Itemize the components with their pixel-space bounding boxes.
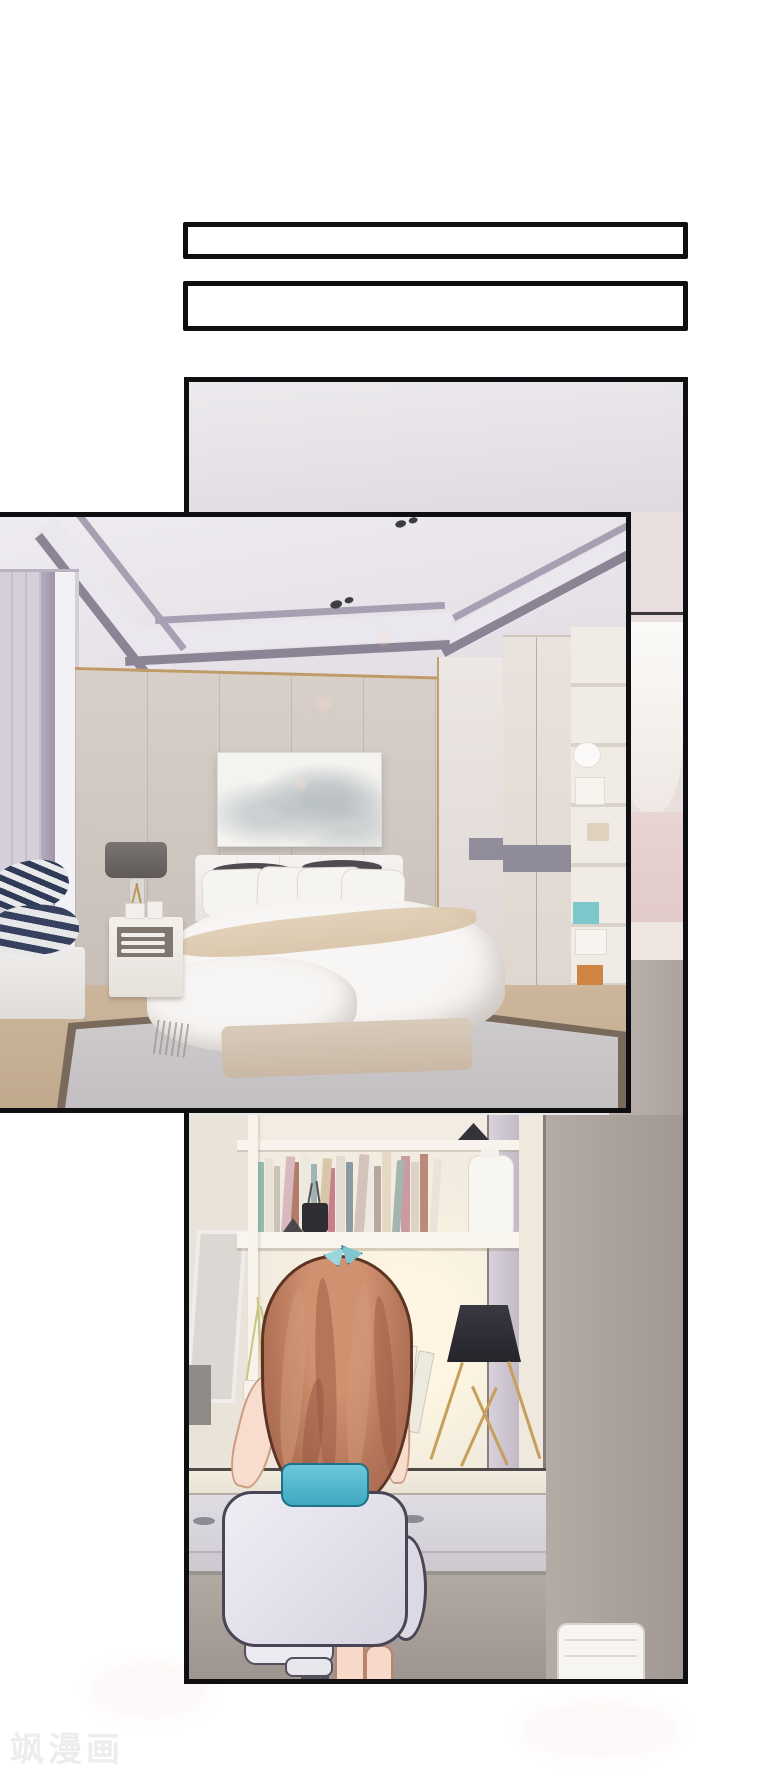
room-ceiling <box>189 382 683 532</box>
white-cabinet <box>557 1623 645 1679</box>
book-spine <box>382 1152 392 1232</box>
white-jar <box>468 1155 514 1234</box>
teal-bin <box>573 902 599 924</box>
tan-box <box>587 823 609 841</box>
towel-roll <box>573 742 601 768</box>
canister <box>125 903 145 919</box>
narration-box-1 <box>183 222 688 259</box>
book-spine <box>336 1156 345 1232</box>
bed-base <box>221 1018 473 1079</box>
desk-scene <box>189 1115 683 1679</box>
paper-tint <box>520 1700 680 1760</box>
bokeh-sparkle <box>295 779 307 791</box>
book-spine <box>346 1162 354 1232</box>
shelf-board <box>237 1232 519 1248</box>
girl-teal-top <box>281 1463 369 1507</box>
chair-backrest <box>222 1491 408 1647</box>
bokeh-sparkle <box>317 697 331 711</box>
wardrobe-side-wall <box>546 1115 683 1679</box>
throw-fringe <box>153 1020 193 1059</box>
gray-box <box>189 1365 211 1425</box>
book-row <box>255 1152 437 1232</box>
wardrobe-sliding-doors <box>503 635 571 999</box>
nightstand-shelf <box>117 927 173 957</box>
narration-box-2 <box>183 281 688 331</box>
shelf-board-upper <box>237 1140 519 1150</box>
wall-artwork <box>217 752 382 847</box>
watermark: 飒漫画 <box>10 1722 124 1770</box>
book-spine <box>274 1166 281 1232</box>
girl-leg <box>365 1645 393 1679</box>
book-spine <box>374 1166 381 1232</box>
window-bench <box>0 947 85 1019</box>
canister <box>147 901 163 919</box>
book-spine <box>420 1154 429 1232</box>
chair-foot <box>285 1657 333 1677</box>
comic-page: 飒漫画 <box>0 0 760 1770</box>
bedroom-photo-panel <box>0 512 631 1113</box>
drawer-handle <box>193 1517 215 1525</box>
bokeh-sparkle <box>379 635 389 645</box>
bedside-lamp-shade <box>105 842 167 878</box>
nightstand <box>109 917 183 997</box>
black-diffuser <box>302 1203 328 1232</box>
book-spine <box>265 1158 273 1232</box>
white-box <box>575 777 605 805</box>
book-spine <box>411 1162 419 1232</box>
linen-stack <box>575 929 607 955</box>
